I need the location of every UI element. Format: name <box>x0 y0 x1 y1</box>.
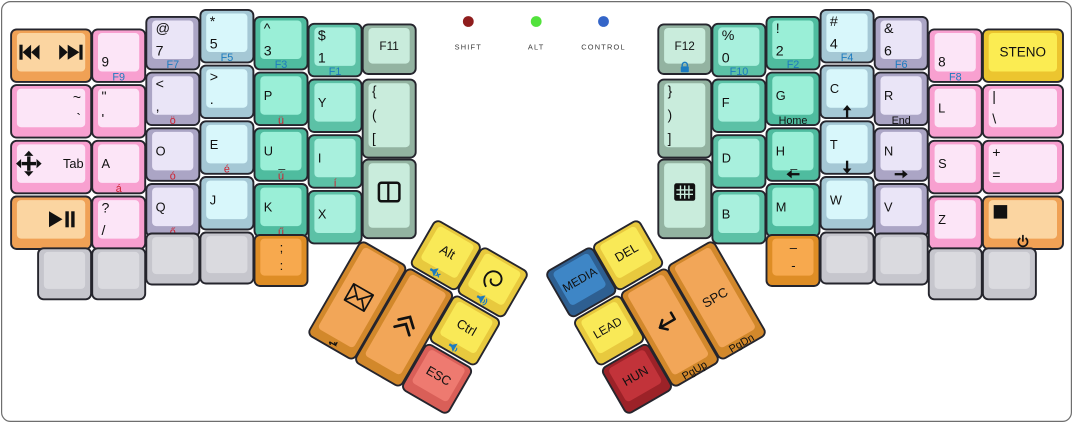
svg-text:F5: F5 <box>221 52 234 64</box>
svg-text:(: ( <box>372 108 377 123</box>
svg-text:3: 3 <box>264 43 272 59</box>
svg-text:–: – <box>790 240 798 255</box>
svg-text:W: W <box>830 193 843 208</box>
svg-text:_: _ <box>790 156 798 170</box>
svg-text:R: R <box>884 88 893 103</box>
svg-text:Z: Z <box>938 212 946 227</box>
svg-text:Y: Y <box>318 95 327 110</box>
svg-text:6: 6 <box>884 43 892 59</box>
svg-text:>: > <box>210 70 218 86</box>
svg-text:K: K <box>264 199 273 214</box>
svg-text:?: ? <box>102 201 110 217</box>
svg-text:G: G <box>776 88 786 103</box>
svg-text:ALT: ALT <box>528 43 545 52</box>
svg-text:^: ^ <box>264 21 271 37</box>
svg-text:<: < <box>156 77 164 93</box>
svg-text:F: F <box>722 95 730 110</box>
svg-text:4: 4 <box>830 36 838 52</box>
svg-text:*: * <box>210 14 216 30</box>
svg-text:0: 0 <box>722 50 730 66</box>
svg-text:;: ; <box>280 240 284 255</box>
svg-text:-: - <box>791 258 795 273</box>
svg-text:]: ] <box>668 131 672 146</box>
svg-text:F6: F6 <box>895 59 908 71</box>
svg-text:V: V <box>884 199 893 214</box>
svg-text:.: . <box>210 92 214 108</box>
svg-text:}: } <box>668 83 673 98</box>
svg-text:End: End <box>892 115 911 127</box>
svg-text:$: $ <box>318 28 326 44</box>
svg-text:U: U <box>264 144 273 159</box>
svg-text:F12: F12 <box>675 39 695 53</box>
svg-text:!: ! <box>776 21 780 37</box>
svg-text:á: á <box>116 183 122 195</box>
svg-text:#: # <box>830 14 838 30</box>
svg-text:7: 7 <box>156 43 164 59</box>
svg-text:N: N <box>884 144 893 159</box>
svg-text:C: C <box>830 81 839 96</box>
svg-text:F10: F10 <box>730 66 749 78</box>
svg-text:é: é <box>224 164 230 176</box>
svg-text:~: ~ <box>73 89 81 105</box>
svg-text:T: T <box>830 137 838 152</box>
svg-text:F8: F8 <box>949 72 962 84</box>
svg-text:{: { <box>372 83 377 98</box>
svg-text:1: 1 <box>318 50 326 66</box>
svg-text:F4: F4 <box>841 52 854 64</box>
svg-text:,: , <box>156 99 160 115</box>
svg-text:CONTROL: CONTROL <box>581 43 626 52</box>
svg-text:SHIFT: SHIFT <box>455 43 482 52</box>
svg-text:I: I <box>318 151 322 166</box>
svg-text:8: 8 <box>938 55 946 70</box>
svg-text:E: E <box>210 137 219 152</box>
svg-text:2: 2 <box>776 43 784 59</box>
svg-text:%: % <box>722 28 735 44</box>
svg-text:O: O <box>156 144 166 159</box>
svg-text:B: B <box>722 206 731 221</box>
svg-text:=: = <box>992 167 1000 183</box>
svg-text:F2: F2 <box>787 59 800 71</box>
svg-text:L: L <box>938 101 945 116</box>
svg-text:H: H <box>776 144 785 159</box>
svg-text:[: [ <box>372 131 376 146</box>
svg-text:A: A <box>102 156 111 171</box>
svg-text:STENO: STENO <box>1000 45 1047 60</box>
svg-text:M: M <box>776 199 787 214</box>
svg-text:Home: Home <box>779 115 808 127</box>
svg-text:ü: ü <box>278 115 284 127</box>
svg-text:F11: F11 <box>379 39 398 53</box>
svg-text:@: @ <box>156 21 170 37</box>
svg-text:`: ` <box>76 110 81 126</box>
svg-text:&: & <box>884 21 894 37</box>
svg-text:Q: Q <box>156 199 166 214</box>
svg-text:": " <box>102 89 107 105</box>
svg-text:Tab: Tab <box>63 156 84 171</box>
svg-text:í: í <box>334 178 337 190</box>
svg-text:S: S <box>938 156 947 171</box>
svg-text::: : <box>280 258 284 273</box>
svg-text:F9: F9 <box>112 72 125 84</box>
svg-text:9: 9 <box>102 55 110 70</box>
svg-text:ú: ú <box>278 171 284 183</box>
svg-text:F1: F1 <box>329 66 342 78</box>
svg-text:F3: F3 <box>275 59 288 71</box>
svg-text:': ' <box>102 112 105 128</box>
svg-text:_: _ <box>278 156 286 170</box>
svg-text:/: / <box>102 223 106 239</box>
svg-text:F7: F7 <box>166 59 179 71</box>
svg-text:J: J <box>210 193 216 208</box>
svg-text:ó: ó <box>170 171 176 183</box>
svg-text:D: D <box>722 151 731 166</box>
svg-text:X: X <box>318 206 327 221</box>
svg-text:): ) <box>668 108 673 123</box>
svg-text:+: + <box>992 145 1000 161</box>
svg-text:P: P <box>264 88 273 103</box>
svg-text:\: \ <box>992 112 996 128</box>
svg-text:ö: ö <box>170 115 176 127</box>
svg-text:|: | <box>992 89 996 105</box>
svg-text:5: 5 <box>210 36 218 52</box>
